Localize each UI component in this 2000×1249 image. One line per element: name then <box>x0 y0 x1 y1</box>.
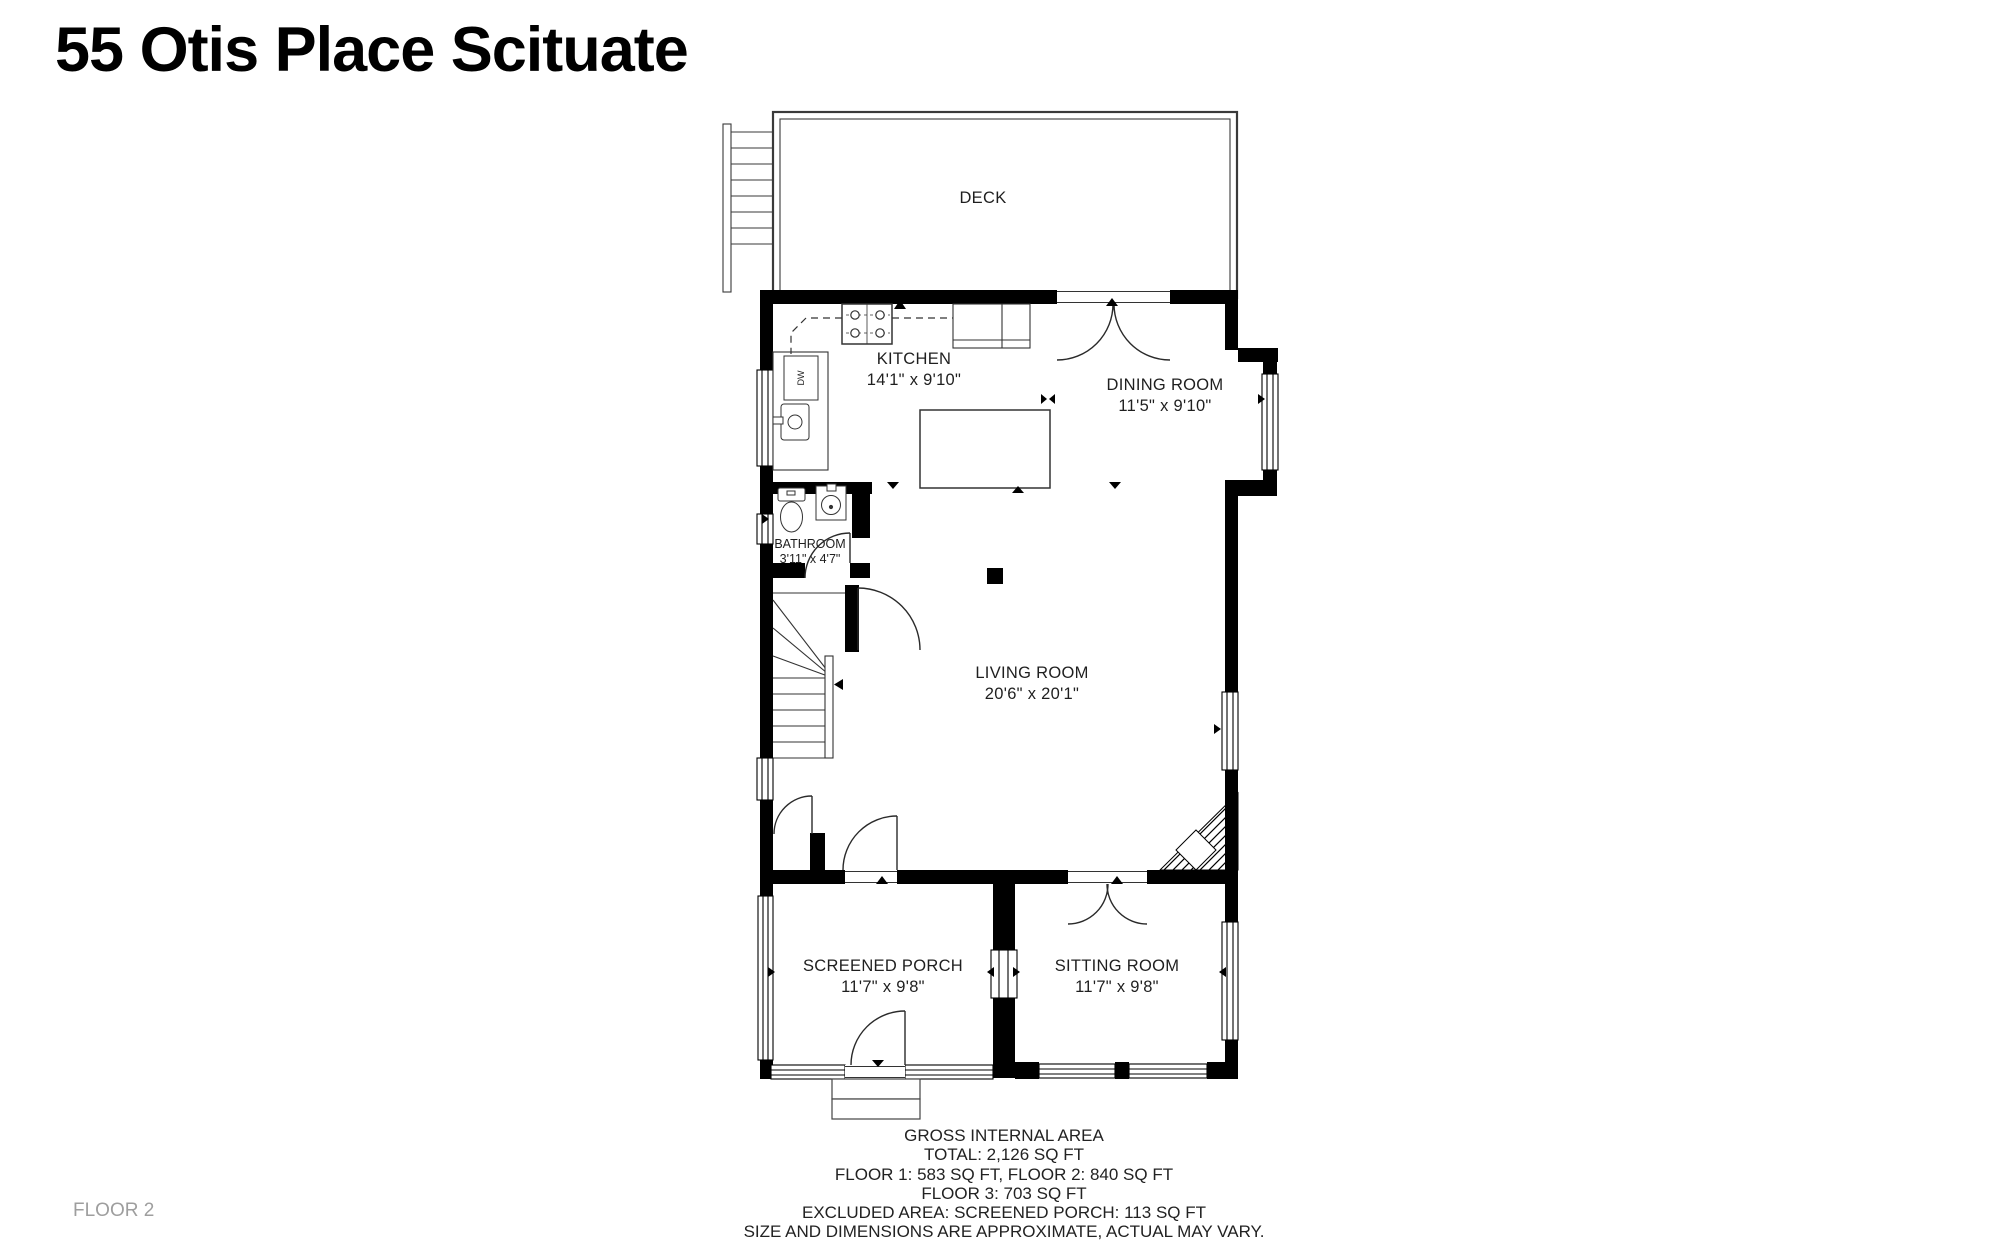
window-bay <box>1262 374 1278 470</box>
bowtie-marker <box>1049 394 1055 404</box>
bathroom-dims: 3'11" x 4'7" <box>780 552 841 566</box>
opening-porch-exit <box>845 1065 905 1079</box>
window-sitting-bottom-1 <box>1039 1064 1115 1078</box>
deck-label: DECK <box>959 189 1006 207</box>
summary-excluded: EXCLUDED AREA: SCREENED PORCH: 113 SQ FT <box>604 1203 1404 1222</box>
porch-screen-left <box>758 896 773 1060</box>
bath-sink-icon <box>816 484 846 520</box>
stair-top-door <box>858 588 920 650</box>
opening-living-porch <box>845 870 897 884</box>
summary-total: TOTAL: 2,126 SQ FT <box>604 1145 1404 1164</box>
window-kitchen <box>757 370 773 466</box>
living-dims: 20'6" x 20'1" <box>985 685 1079 703</box>
dining-label: DINING ROOM <box>1107 376 1224 394</box>
ceiling-marker <box>887 482 899 489</box>
summary-disclaimer: SIZE AND DIMENSIONS ARE APPROXIMATE, ACT… <box>604 1222 1404 1241</box>
summary-floor-3: FLOOR 3: 703 SQ FT <box>604 1184 1404 1203</box>
dining-dims: 11'5" x 9'10" <box>1118 397 1211 415</box>
sitting-label: SITTING ROOM <box>1055 957 1180 975</box>
kitchen-dims: 14'1" x 9'10" <box>867 371 961 389</box>
entry-steps <box>832 1079 920 1119</box>
stair-arrow <box>834 679 843 690</box>
porch-screen-bottom-left <box>771 1065 845 1079</box>
opening-sitting-doors <box>1068 870 1147 884</box>
dishwasher-label: DW <box>796 370 806 385</box>
deck-stairs <box>723 124 773 292</box>
porch-dims: 11'7" x 9'8" <box>841 978 925 996</box>
window-marker <box>1214 724 1221 734</box>
fireplace-icon <box>1160 793 1238 870</box>
stair-bottom-door <box>774 796 812 834</box>
refrigerator-icon <box>953 304 1030 348</box>
staircase <box>773 593 845 758</box>
area-summary: GROSS INTERNAL AREA TOTAL: 2,126 SQ FT F… <box>604 1126 1404 1242</box>
window-stairs <box>757 758 773 800</box>
kitchen-island <box>920 410 1050 488</box>
ceiling-marker <box>1109 482 1121 489</box>
living-porch-door <box>843 816 897 870</box>
deck-french-door-left <box>1057 304 1113 360</box>
summary-heading: GROSS INTERNAL AREA <box>604 1126 1404 1145</box>
porch-exit-door <box>851 1011 905 1065</box>
bathroom-label: BATHROOM <box>774 537 845 551</box>
sitting-french-door-right <box>1107 884 1147 924</box>
upper-cabinets-dashed <box>791 318 842 354</box>
sitting-french-door-left <box>1068 884 1108 924</box>
living-label: LIVING ROOM <box>975 664 1088 682</box>
stove-icon <box>842 304 892 344</box>
kitchen-fixtures: DW <box>773 304 1050 488</box>
floor-label: FLOOR 2 <box>73 1200 154 1222</box>
deck-french-door-right <box>1114 304 1170 360</box>
kitchen-label: KITCHEN <box>877 350 952 368</box>
bowtie-marker <box>1041 394 1047 404</box>
floor-plan: DW <box>0 0 2000 1249</box>
sitting-dims: 11'7" x 9'8" <box>1075 978 1159 996</box>
window-sitting-bottom-2 <box>1129 1064 1207 1078</box>
window-living <box>1222 692 1238 770</box>
window-sitting-right <box>1222 922 1238 1040</box>
column <box>987 568 1003 584</box>
toilet-icon <box>778 488 805 532</box>
porch-screen-bottom-right <box>905 1065 993 1079</box>
porch-label: SCREENED PORCH <box>803 957 963 975</box>
summary-floors-1-2: FLOOR 1: 583 SQ FT, FLOOR 2: 840 SQ FT <box>604 1165 1404 1184</box>
